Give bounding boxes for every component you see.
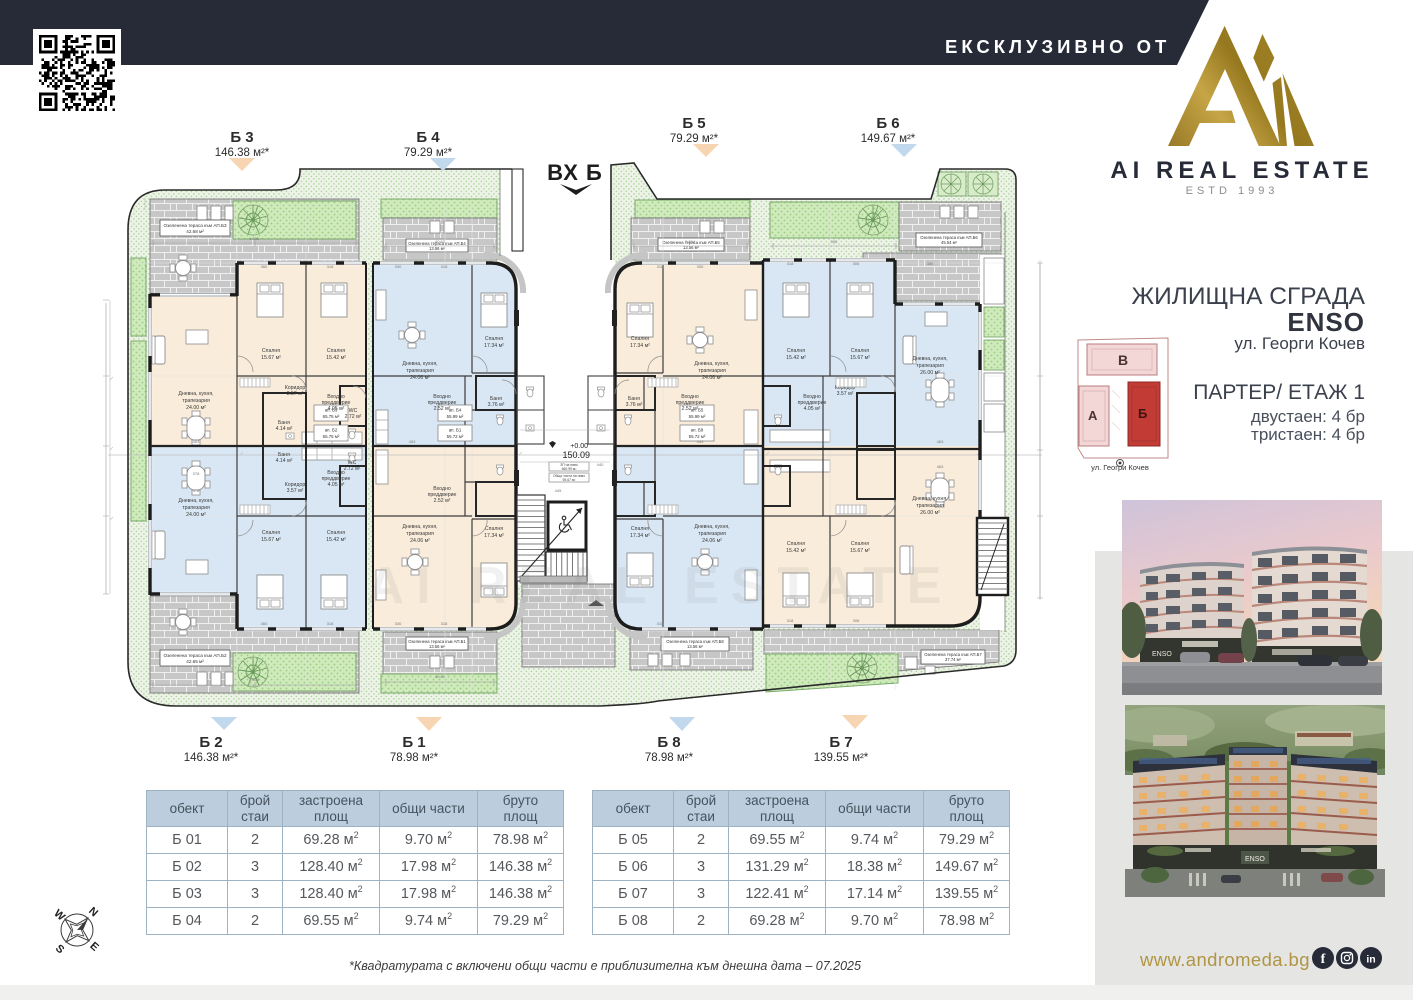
svg-text:Дневна, кухня,: Дневна, кухня, [694,524,729,530]
svg-text:ENSO: ENSO [1245,856,1265,863]
svg-text:55.72 м²: 55.72 м² [447,434,464,439]
svg-text:3.57 м²: 3.57 м² [837,391,854,397]
svg-text:ап. Б1: ап. Б1 [449,428,462,433]
svg-text:78.98 м²*: 78.98 м²* [645,752,694,764]
svg-text:330: 330 [697,264,704,269]
svg-text:3.154: 3.154 [685,239,696,244]
svg-text:318: 318 [441,621,448,626]
svg-text:Дневна, кухня,: Дневна, кухня, [912,356,947,362]
svg-text:трапезария: трапезария [916,363,944,369]
svg-text:24.06 м²: 24.06 м² [410,538,430,544]
svg-text:Спалня: Спалня [631,526,649,532]
svg-text:40.62: 40.62 [435,674,446,679]
svg-text:79.29 м²*: 79.29 м²* [404,147,453,159]
svg-text:Спалня: Спалня [851,541,869,547]
svg-text:трапезария: трапезария [698,531,726,537]
svg-text:Озеленена тераса към АП.Б2: Озеленена тераса към АП.Б2 [163,653,226,658]
svg-text:318: 318 [327,264,334,269]
svg-text:трапезария: трапезария [406,368,434,374]
svg-text:трапезария: трапезария [406,531,434,537]
svg-text:24.06 м²: 24.06 м² [702,375,722,381]
svg-text:24.00 м²: 24.00 м² [186,512,206,518]
svg-text:Спалня: Спалня [485,336,503,342]
svg-text:Дневна, кухня,: Дневна, кухня, [178,391,213,397]
svg-text:2.52 м²: 2.52 м² [434,406,451,412]
svg-text:1.036: 1.036 [249,236,260,241]
svg-text:65.75 м²: 65.75 м² [323,434,340,439]
svg-text:17.34 м²: 17.34 м² [484,343,504,349]
svg-text:2.72 м²: 2.72 м² [344,466,361,472]
svg-text:15.42 м²: 15.42 м² [786,548,806,554]
svg-text:463: 463 [193,439,200,444]
svg-text:13.56 м²: 13.56 м² [429,246,446,251]
svg-text:трапезария: трапезария [698,368,726,374]
svg-text:660.99 м²: 660.99 м² [562,467,578,471]
svg-text:65.75 м²: 65.75 м² [323,414,340,419]
svg-text:3.57 м²: 3.57 м² [287,391,304,397]
svg-text:in: in [1366,954,1375,966]
svg-text:ENSO: ENSO [1152,651,1172,658]
svg-text:Спалня: Спалня [631,336,649,342]
svg-text:139.55 м²*: 139.55 м²* [814,752,869,764]
svg-text:95.67 м²: 95.67 м² [563,478,577,482]
svg-text:3.57 м²: 3.57 м² [287,488,304,494]
svg-text:2.52 м²: 2.52 м² [682,406,699,412]
svg-text:445: 445 [555,488,562,493]
svg-text:2.72 м²: 2.72 м² [345,414,362,420]
svg-text:Б 7: Б 7 [829,734,852,751]
svg-text:453: 453 [697,439,704,444]
svg-text:42.65 м²: 42.65 м² [186,659,204,664]
svg-text:378: 378 [193,471,200,476]
svg-text:24.06 м²: 24.06 м² [702,538,722,544]
svg-text:360: 360 [261,621,268,626]
svg-text:146.38 м²*: 146.38 м²* [184,752,239,764]
svg-text:390: 390 [831,239,838,244]
svg-text:Озеленена тераса към АП.Б3: Озеленена тераса към АП.Б3 [163,223,226,228]
svg-text:Дневна, кухня,: Дневна, кухня, [694,361,729,367]
svg-text:24.00 м²: 24.00 м² [186,405,206,411]
svg-text:306: 306 [853,618,860,623]
svg-text:В: В [1118,352,1128,368]
svg-text:15.42 м²: 15.42 м² [326,537,346,543]
svg-text:318: 318 [787,261,794,266]
svg-text:1.038: 1.038 [249,677,260,682]
svg-text:330: 330 [395,621,402,626]
svg-text:Спалня: Спалня [327,348,345,354]
svg-text:13.56 м²: 13.56 м² [687,644,704,649]
svg-text:45.54 м²: 45.54 м² [941,240,958,245]
svg-text:15.67 м²: 15.67 м² [850,355,870,361]
svg-text:79.29 м²*: 79.29 м²* [670,133,719,145]
svg-text:Б 3: Б 3 [230,129,253,146]
svg-text:Б 6: Б 6 [876,115,899,132]
svg-text:Спалня: Спалня [787,348,805,354]
svg-text:ап. Б2: ап. Б2 [325,428,338,433]
svg-text:378: 378 [193,488,200,493]
svg-text:318: 318 [441,264,448,269]
svg-text:3.76 м²: 3.76 м² [626,402,643,408]
svg-text:463: 463 [937,464,944,469]
svg-text:146.38 м²*: 146.38 м²* [215,147,270,159]
svg-text:13.56 м²: 13.56 м² [429,644,446,649]
svg-text:17.34 м²: 17.34 м² [484,533,504,539]
svg-text:318: 318 [327,621,334,626]
svg-text:318: 318 [787,618,794,623]
svg-text:78.98 м²*: 78.98 м²* [390,752,439,764]
svg-text:360: 360 [261,264,268,269]
svg-text:ап. Б8: ап. Б8 [691,428,704,433]
svg-text:AI REAL ESTATE: AI REAL ESTATE [367,557,954,615]
svg-text:330: 330 [395,264,402,269]
svg-text:149.67 м²*: 149.67 м²* [861,133,916,145]
svg-text:42.68 м²: 42.68 м² [186,229,204,234]
svg-text:Дневна, кухня,: Дневна, кухня, [178,498,213,504]
svg-text:f: f [1321,952,1326,967]
svg-text:Спалня: Спалня [262,530,280,536]
svg-text:4.05 м²: 4.05 м² [328,406,345,412]
svg-text:318: 318 [657,621,664,626]
svg-text:ВХ Б: ВХ Б [547,160,603,185]
svg-text:453: 453 [409,439,416,444]
svg-text:Б 5: Б 5 [682,115,705,132]
svg-text:306: 306 [853,261,860,266]
svg-text:трапезария: трапезария [182,505,210,511]
svg-text:15.67 м²: 15.67 м² [850,548,870,554]
svg-text:2.52 м²: 2.52 м² [434,498,451,504]
svg-text:380: 380 [927,261,934,266]
svg-text:Спалня: Спалня [485,526,503,532]
svg-text:Спалня: Спалня [851,348,869,354]
svg-text:37.74 м²: 37.74 м² [945,657,962,662]
svg-text:трапезария: трапезария [916,503,944,509]
svg-text:55.99 м²: 55.99 м² [447,414,464,419]
svg-text:15.42 м²: 15.42 м² [326,355,346,361]
svg-text:4.14 м²: 4.14 м² [276,426,293,432]
svg-text:15.67 м²: 15.67 м² [261,537,281,543]
svg-text:Б 1: Б 1 [402,734,425,751]
svg-text:Дневна, кухня,: Дневна, кухня, [402,524,437,530]
svg-text:Спалня: Спалня [262,348,280,354]
svg-text:+0.00: +0.00 [570,443,588,450]
svg-text:Дневна, кухня,: Дневна, кухня, [402,361,437,367]
svg-text:15.42 м²: 15.42 м² [786,355,806,361]
svg-text:ап. Б4: ап. Б4 [449,408,462,413]
svg-text:26.00 м²: 26.00 м² [920,510,940,516]
svg-text:17.34 м²: 17.34 м² [630,343,650,349]
svg-text:Дневна, кухня,: Дневна, кухня, [912,496,947,502]
svg-text:Спалня: Спалня [787,541,805,547]
svg-text:4.05 м²: 4.05 м² [328,482,345,488]
svg-text:55.99 м²: 55.99 м² [689,414,706,419]
svg-text:17.34 м²: 17.34 м² [630,533,650,539]
svg-text:463: 463 [937,439,944,444]
svg-text:Б 2: Б 2 [199,734,222,751]
svg-text:440: 440 [597,462,604,467]
svg-text:40.62: 40.62 [435,239,446,244]
svg-text:4.05 м²: 4.05 м² [804,406,821,412]
svg-text:Спалня: Спалня [327,530,345,536]
svg-text:26.00 м²: 26.00 м² [920,370,940,376]
svg-text:15.67 м²: 15.67 м² [261,355,281,361]
svg-text:318: 318 [657,264,664,269]
svg-text:150.09: 150.09 [562,450,590,460]
svg-text:Б: Б [1138,406,1147,421]
svg-text:трапезария: трапезария [182,398,210,404]
svg-text:Б 8: Б 8 [657,734,680,751]
svg-text:4.14 м²: 4.14 м² [276,458,293,464]
svg-text:Б 4: Б 4 [416,129,440,146]
svg-text:3.76 м²: 3.76 м² [488,402,505,408]
svg-text:24.06 м²: 24.06 м² [410,375,430,381]
